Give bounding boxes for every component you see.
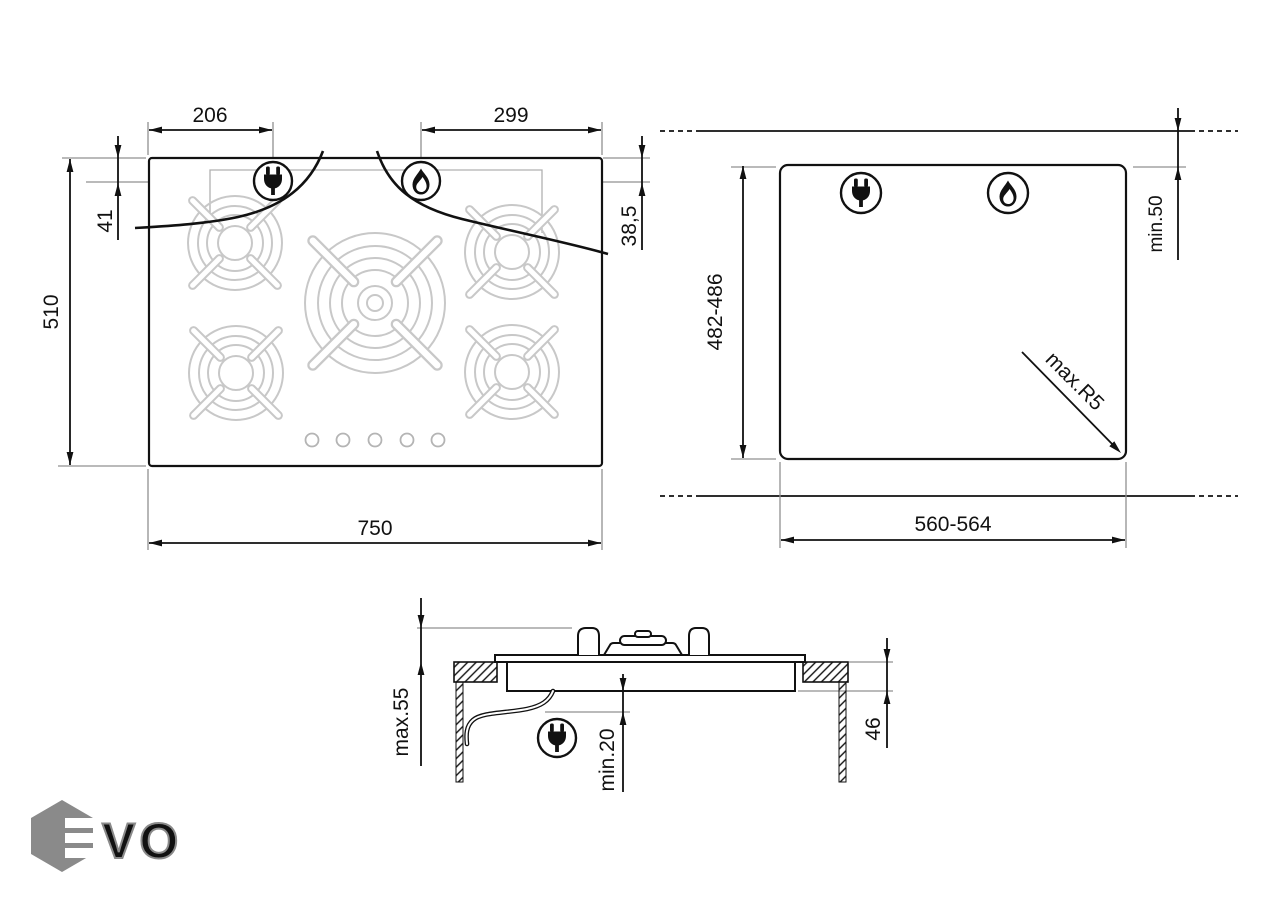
dim-flame-offset-label: 299	[493, 104, 528, 127]
dim-recess-depth-label: 46	[862, 717, 885, 740]
gas-flame-icon	[988, 173, 1028, 213]
dim-max-height: max.55	[390, 598, 424, 766]
dim-flame-inset-label: 38,5	[618, 206, 641, 247]
cabinet-wall-right	[839, 682, 846, 782]
worktop-section-right	[803, 662, 848, 682]
cutout-view: 482-486 560-564 min.50 max.R5	[660, 108, 1238, 548]
dim-max-height-label: max.55	[390, 688, 413, 757]
hob-outline	[149, 158, 602, 466]
dim-hob-width-label: 750	[357, 517, 392, 540]
top-view: 206 299 41 38,5 510	[40, 104, 650, 550]
power-plug-icon	[841, 173, 881, 213]
dim-flame-offset: 299	[422, 104, 601, 133]
dim-plug-offset-label: 206	[192, 104, 227, 127]
gas-flame-icon	[402, 162, 440, 200]
dim-hob-depth-label: 510	[40, 294, 63, 329]
power-plug-icon	[538, 719, 576, 757]
dim-plug-inset-label: 41	[94, 209, 117, 232]
diagram-svg: 206 299 41 38,5 510	[0, 0, 1282, 900]
dim-plug-offset: 206	[149, 104, 272, 133]
cutout-outline	[780, 165, 1126, 459]
dim-hob-width: 750	[149, 517, 601, 546]
dim-cutout-width: 560-564	[781, 513, 1125, 543]
dim-cutout-width-label: 560-564	[914, 513, 991, 536]
logo-vo-text: VO	[102, 813, 182, 869]
logo-e-bars	[65, 818, 102, 858]
dim-cutout-height-label: 482-486	[704, 273, 727, 350]
hob-glass-profile	[495, 655, 805, 662]
dim-recess-depth: 46	[862, 638, 890, 748]
worktop-section-left	[454, 662, 497, 682]
side-view: max.55 min.20 46	[390, 598, 893, 792]
pan-support-profile	[578, 628, 709, 655]
dim-min-clearance-label: min.20	[596, 728, 619, 791]
cabinet-wall-left	[456, 682, 463, 782]
dim-flame-inset: 38,5	[618, 136, 645, 250]
hob-body-profile	[507, 662, 795, 691]
dim-cutout-height: 482-486	[704, 166, 746, 458]
dim-plug-inset: 41	[94, 136, 121, 240]
dim-rear-clearance-label: min.50	[1146, 195, 1167, 252]
dim-hob-depth: 510	[40, 159, 73, 465]
evo-logo: VO	[31, 800, 182, 872]
power-plug-icon	[254, 162, 292, 200]
installation-diagram: 206 299 41 38,5 510	[0, 0, 1282, 900]
